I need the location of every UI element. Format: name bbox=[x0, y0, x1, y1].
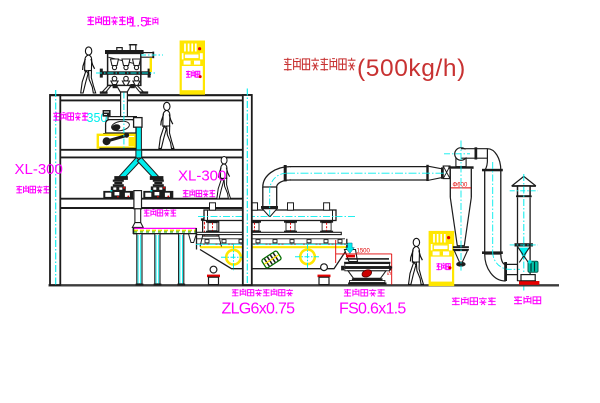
svg-text:1.5: 1.5 bbox=[129, 14, 149, 30]
svg-text:1500: 1500 bbox=[357, 248, 371, 254]
svg-text:XL-300: XL-300 bbox=[15, 161, 63, 178]
svg-text:XL-300: XL-300 bbox=[178, 168, 226, 185]
svg-text:(500kg/h): (500kg/h) bbox=[357, 55, 466, 82]
svg-text:FS0.6x1.5: FS0.6x1.5 bbox=[339, 301, 406, 318]
svg-text:ZLG6x0.75: ZLG6x0.75 bbox=[222, 301, 296, 318]
